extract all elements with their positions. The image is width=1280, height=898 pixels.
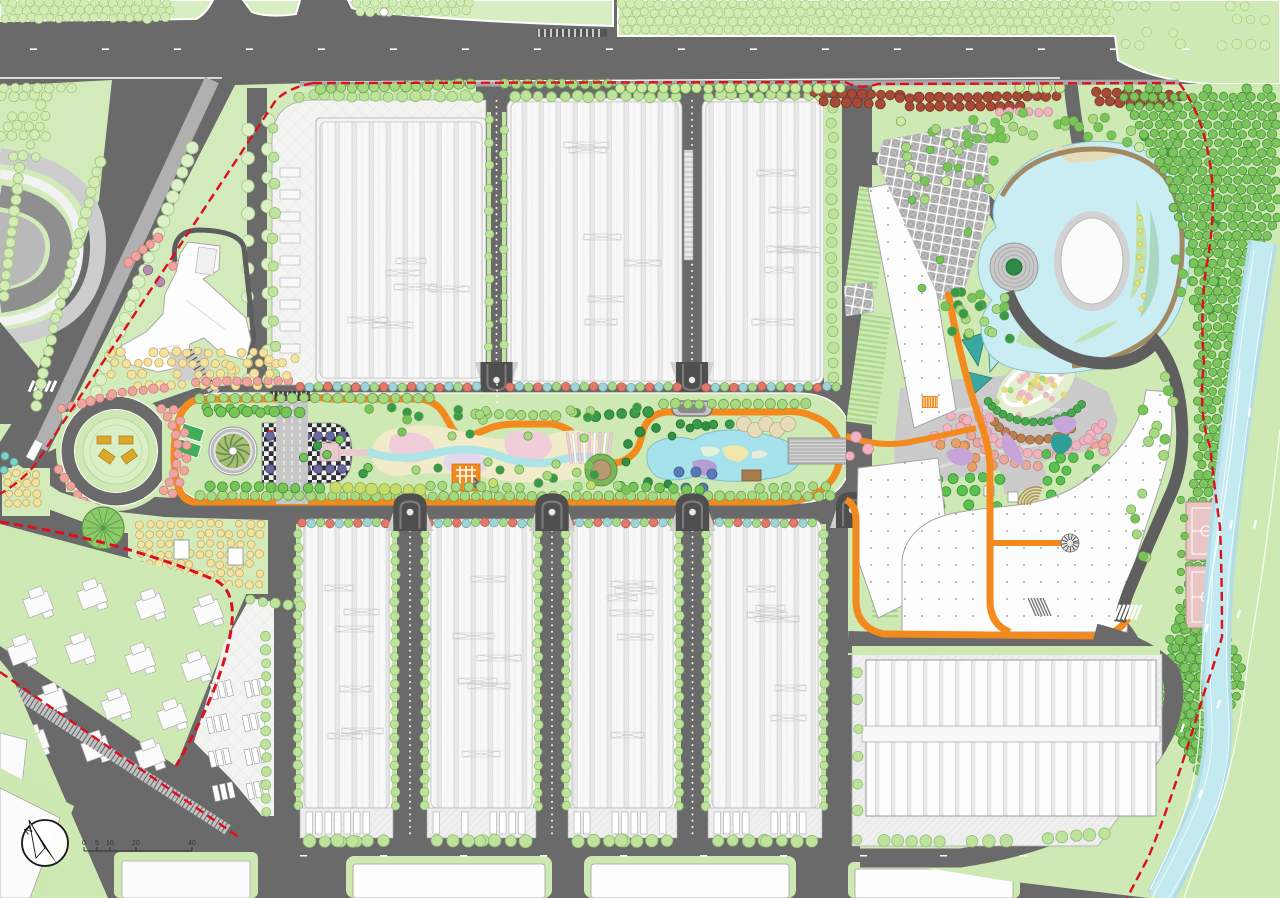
svg-text:40: 40	[188, 840, 196, 847]
svg-text:20: 20	[132, 840, 140, 847]
svg-text:10: 10	[106, 840, 114, 847]
svg-text:5: 5	[95, 840, 99, 847]
svg-text:0: 0	[82, 840, 86, 847]
